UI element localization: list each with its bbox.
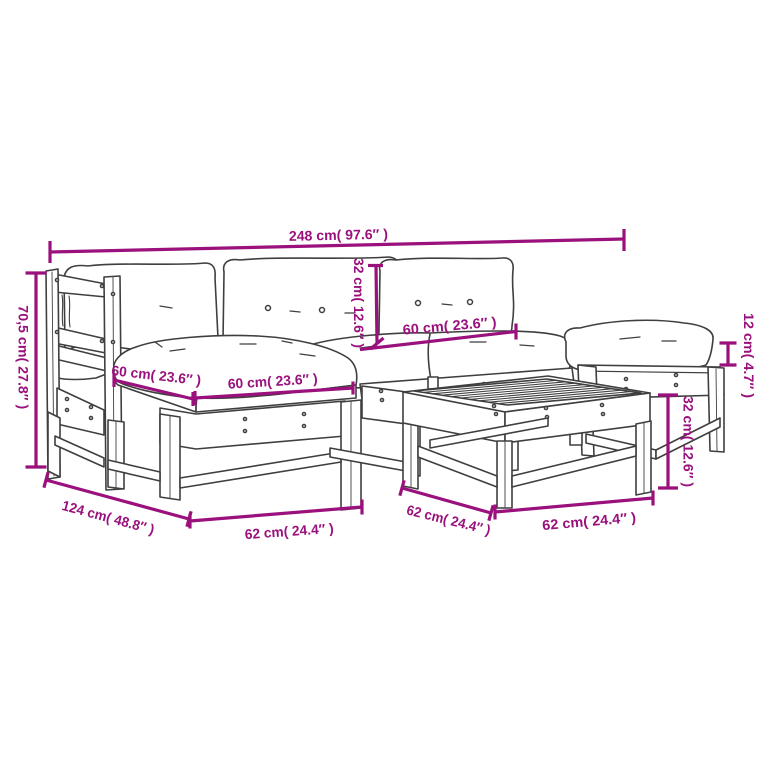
svg-text:12 cm( 4.7″ ): 12 cm( 4.7″ ) [741, 313, 757, 398]
svg-text:32 cm( 12.6″ ): 32 cm( 12.6″ ) [681, 396, 697, 487]
svg-text:32 cm( 12.6″ ): 32 cm( 12.6″ ) [351, 258, 367, 348]
svg-text:248 cm( 97.6″ ): 248 cm( 97.6″ ) [289, 226, 388, 244]
svg-text:70,5 cm( 27.8″ ): 70,5 cm( 27.8″ ) [15, 305, 31, 409]
